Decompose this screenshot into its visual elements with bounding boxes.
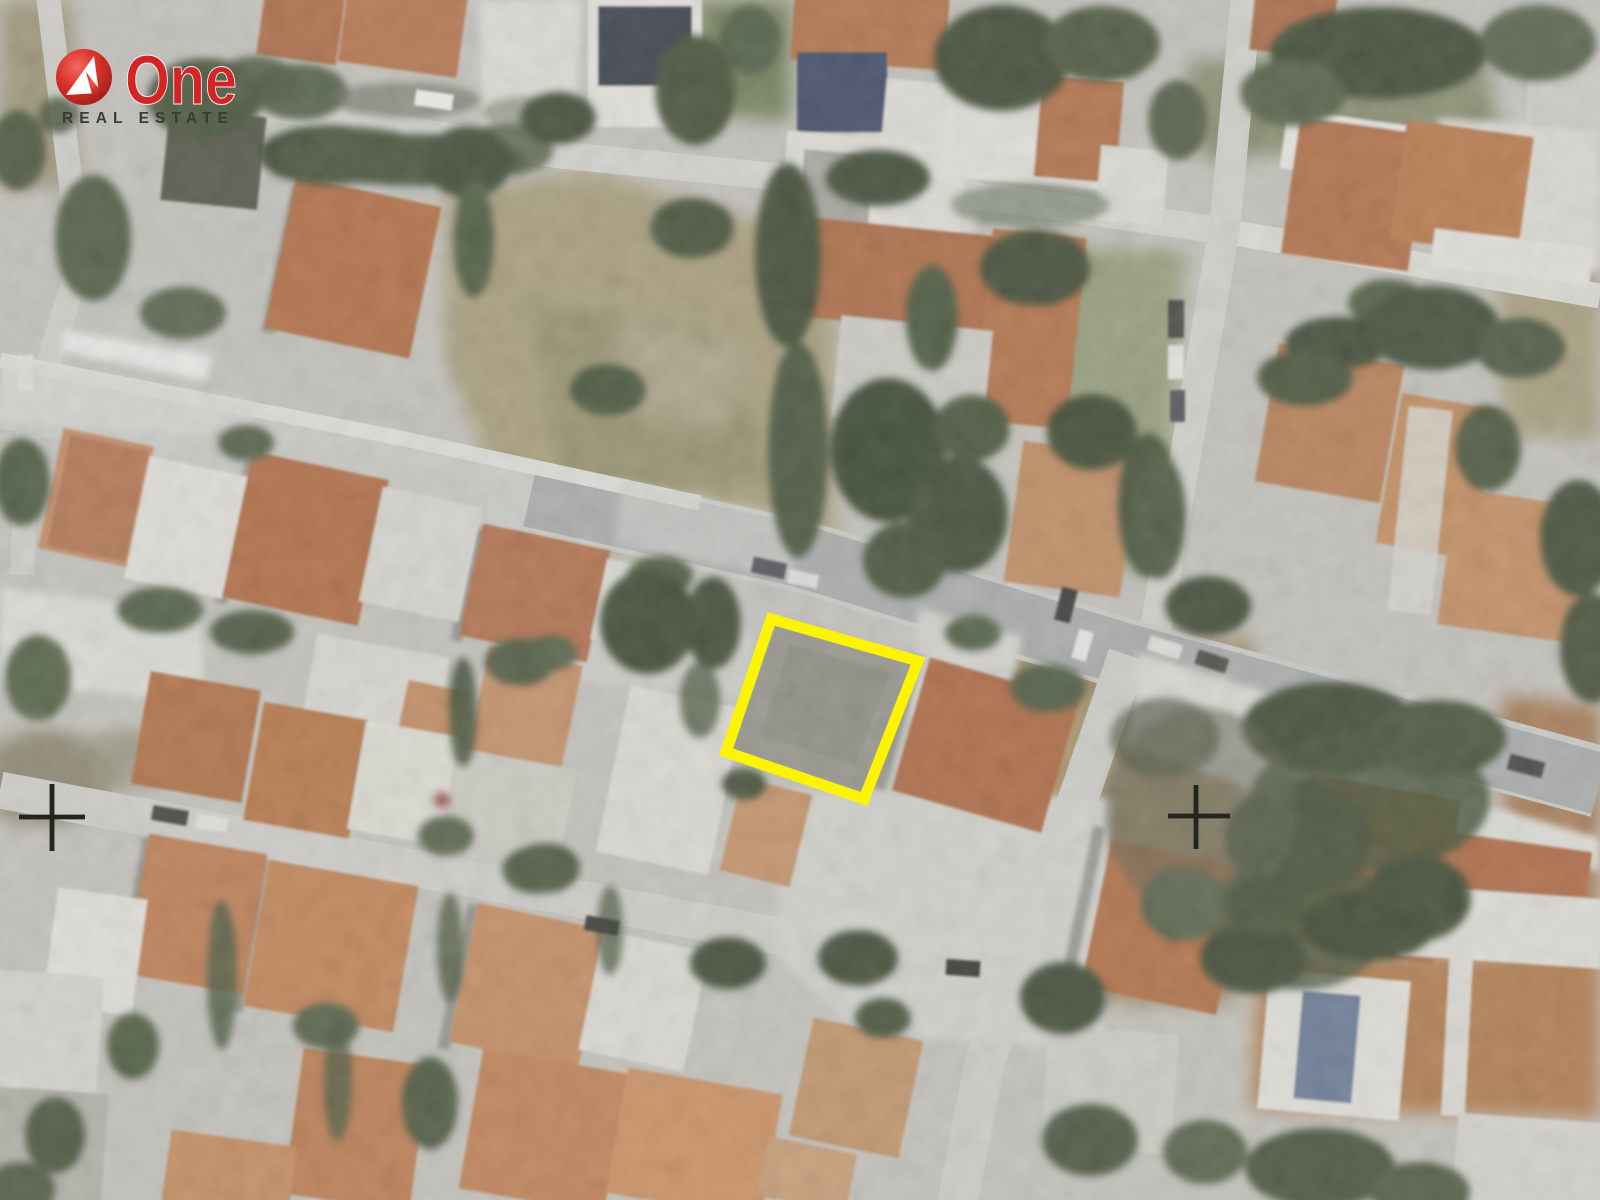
svg-text:REAL ESTATE: REAL ESTATE [62,110,234,127]
svg-text:One: One [125,41,237,119]
